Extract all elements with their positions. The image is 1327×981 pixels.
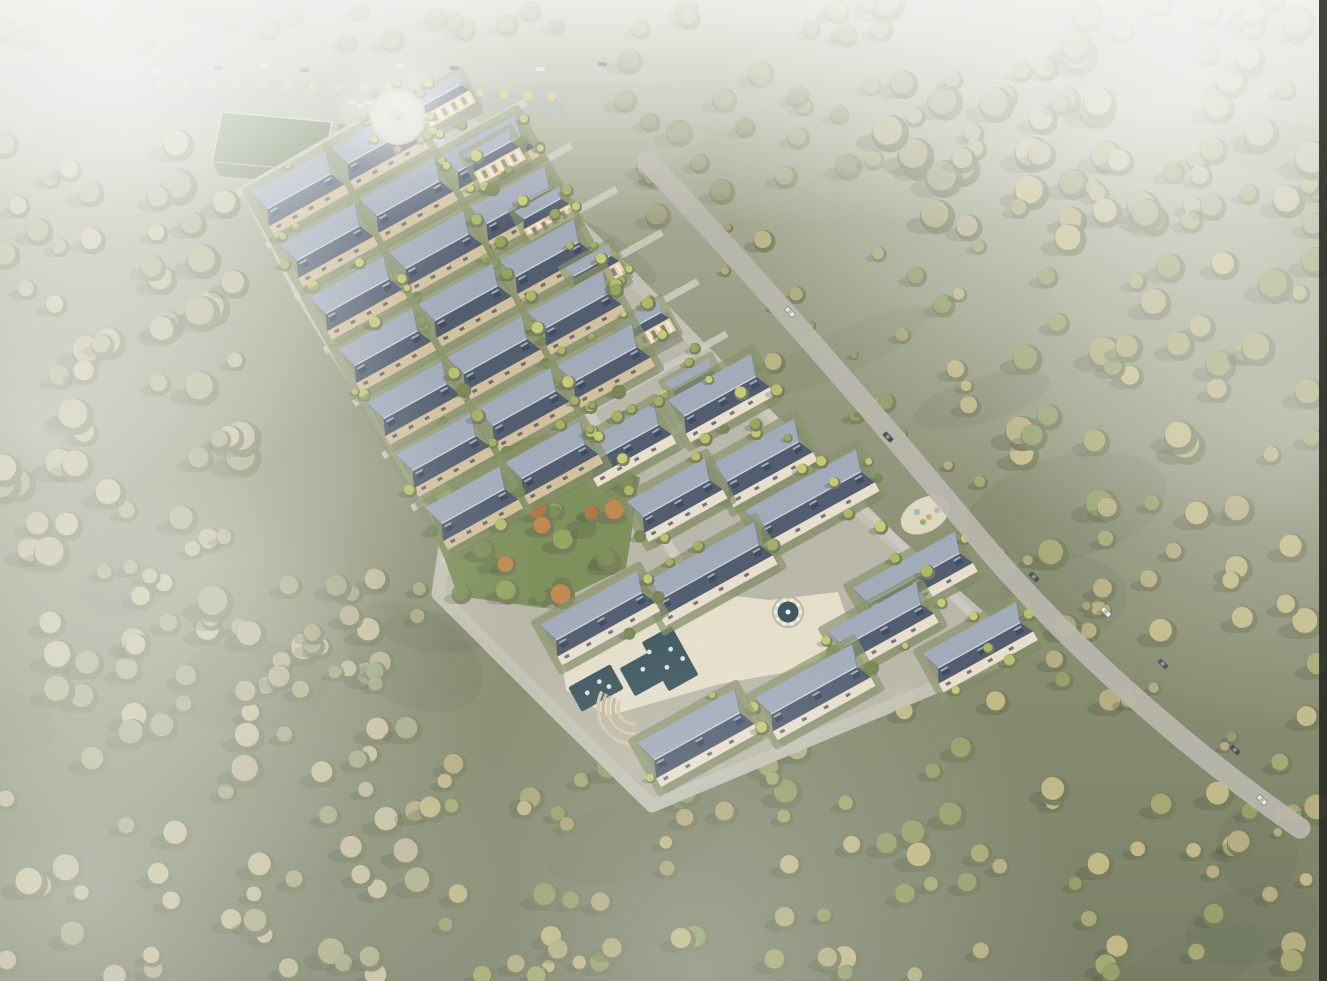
residential-masterplan-rendering [0, 0, 1327, 981]
fog-overlays [0, 0, 1327, 981]
frame-edge-right [1319, 0, 1327, 981]
aerial-rendering-canvas [0, 0, 1327, 981]
